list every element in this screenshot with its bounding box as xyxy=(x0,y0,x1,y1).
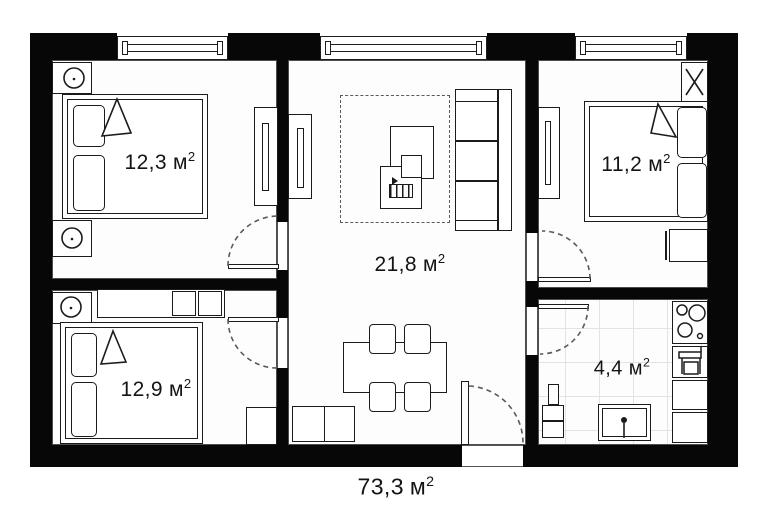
door-leaf-kitchen xyxy=(538,304,589,309)
cabinet-symbol xyxy=(246,407,277,445)
tv-unit-handle xyxy=(297,128,304,188)
window-bedroom-top-left xyxy=(117,36,228,60)
wardrobe-handle xyxy=(545,121,551,185)
shelf-box xyxy=(198,291,222,316)
window-glazing xyxy=(585,44,677,52)
area-unit: м xyxy=(648,153,663,176)
door-opening-bedroom-top-left xyxy=(277,222,288,270)
area-unit-sup: 2 xyxy=(426,474,434,490)
pillow-symbol xyxy=(71,382,97,437)
sofa-cushion xyxy=(455,141,498,181)
area-unit: м xyxy=(629,357,643,379)
chair-symbol xyxy=(369,382,396,412)
shelf-box xyxy=(172,291,196,316)
pillow-symbol xyxy=(677,163,707,218)
area-unit-sup: 2 xyxy=(663,151,671,166)
chair-symbol xyxy=(369,324,396,354)
window-bedroom-top-right xyxy=(575,36,687,60)
area-unit: м xyxy=(173,151,188,174)
nightstand-symbol xyxy=(52,62,92,94)
kitchen-cabinet-symbol xyxy=(672,380,708,410)
pillow-symbol xyxy=(73,155,105,211)
chair-symbol xyxy=(404,382,431,412)
wall-interior-left-vertical xyxy=(277,60,288,222)
wall-bedroom-kitchen xyxy=(538,288,708,299)
window-glazing xyxy=(127,44,218,52)
pillow-symbol xyxy=(73,105,105,147)
wall-bottom-segment xyxy=(523,445,738,467)
room-area-label-bedroom-top-right: 11,2м2 xyxy=(601,151,670,177)
sink-basin-inner xyxy=(602,408,647,437)
area-value: 4,4 xyxy=(594,357,623,379)
window-frame-cap xyxy=(325,41,331,55)
nightstand-symbol xyxy=(52,292,92,324)
door-opening-bedroom-bottom-left xyxy=(277,318,288,368)
door-leaf-bedroom-bottom-left xyxy=(228,317,279,322)
area-value: 21,8 xyxy=(375,253,417,276)
sink-unit-symbol xyxy=(672,346,708,378)
area-value: 73,3 xyxy=(358,474,404,500)
wall-bottom-segment xyxy=(30,445,462,467)
area-unit-sup: 2 xyxy=(188,149,196,164)
floor-plan: 12,3м2 11,2м2 21,8м2 12,9м2 4,4м2 73,3м2 xyxy=(0,0,769,509)
shaft-x-box xyxy=(681,62,708,102)
area-unit: м xyxy=(423,253,438,276)
room-area-label-living-room: 21,8м2 xyxy=(375,251,446,277)
room-area-label-bedroom-bottom-left: 12,9м2 xyxy=(121,376,192,402)
sink-basin-symbol xyxy=(598,404,651,441)
wall-interior-right-vertical xyxy=(526,355,538,445)
wall-left xyxy=(30,33,52,467)
pillow-symbol xyxy=(677,107,707,158)
area-unit-sup: 2 xyxy=(643,356,650,370)
window-frame-cap xyxy=(580,41,586,55)
cooktop-symbol xyxy=(672,301,708,344)
media-box-symbol xyxy=(389,184,413,198)
door-opening-kitchen xyxy=(526,307,538,355)
wall-top-segment xyxy=(487,33,575,60)
nightstand-symbol xyxy=(669,229,708,262)
wall-right xyxy=(708,33,738,467)
wall-interior-left-vertical xyxy=(277,368,288,445)
wall-interior-right-vertical xyxy=(526,60,538,233)
area-unit: м xyxy=(410,474,426,500)
door-leaf-entrance xyxy=(461,381,469,445)
window-frame-cap xyxy=(676,41,682,55)
appliance-symbol xyxy=(548,384,559,405)
kitchen-cabinet-symbol xyxy=(672,412,708,443)
sofa-cushion xyxy=(455,181,498,221)
area-value: 12,9 xyxy=(121,378,163,401)
pillow-symbol xyxy=(71,333,97,377)
window-glazing xyxy=(330,44,477,52)
room-area-label-bedroom-top-left: 12,3м2 xyxy=(125,149,196,175)
area-unit-sup: 2 xyxy=(184,376,192,391)
room-area-label-kitchen: 4,4м2 xyxy=(594,356,650,381)
area-unit: м xyxy=(169,378,184,401)
area-value: 11,2 xyxy=(601,153,642,176)
cabinet-symbol xyxy=(324,406,355,442)
nightstand-side-line xyxy=(665,231,667,260)
total-area-label: 73,3м2 xyxy=(358,474,435,501)
wardrobe-handle xyxy=(262,123,269,191)
area-value: 12,3 xyxy=(125,151,167,174)
wall-interior-right-vertical xyxy=(526,281,538,307)
window-frame-cap xyxy=(122,41,128,55)
wall-interior-left-vertical xyxy=(277,270,288,318)
area-unit-sup: 2 xyxy=(438,251,446,266)
coffee-table-symbol xyxy=(401,155,422,178)
wall-top-segment xyxy=(228,33,320,60)
door-opening-bedroom-top-right xyxy=(526,233,538,281)
cabinet-symbol xyxy=(292,406,325,442)
entrance-opening xyxy=(462,445,523,467)
chair-symbol xyxy=(404,324,431,354)
window-frame-cap xyxy=(476,41,482,55)
door-leaf-bedroom-top-right xyxy=(538,277,591,282)
window-frame-cap xyxy=(217,41,223,55)
door-leaf-bedroom-top-left xyxy=(228,264,279,269)
window-living-room xyxy=(320,36,487,60)
appliance-divider-line xyxy=(543,420,563,422)
sofa-backrest-line xyxy=(497,90,499,230)
sofa-cushion xyxy=(455,101,498,141)
nightstand-symbol xyxy=(52,220,92,257)
